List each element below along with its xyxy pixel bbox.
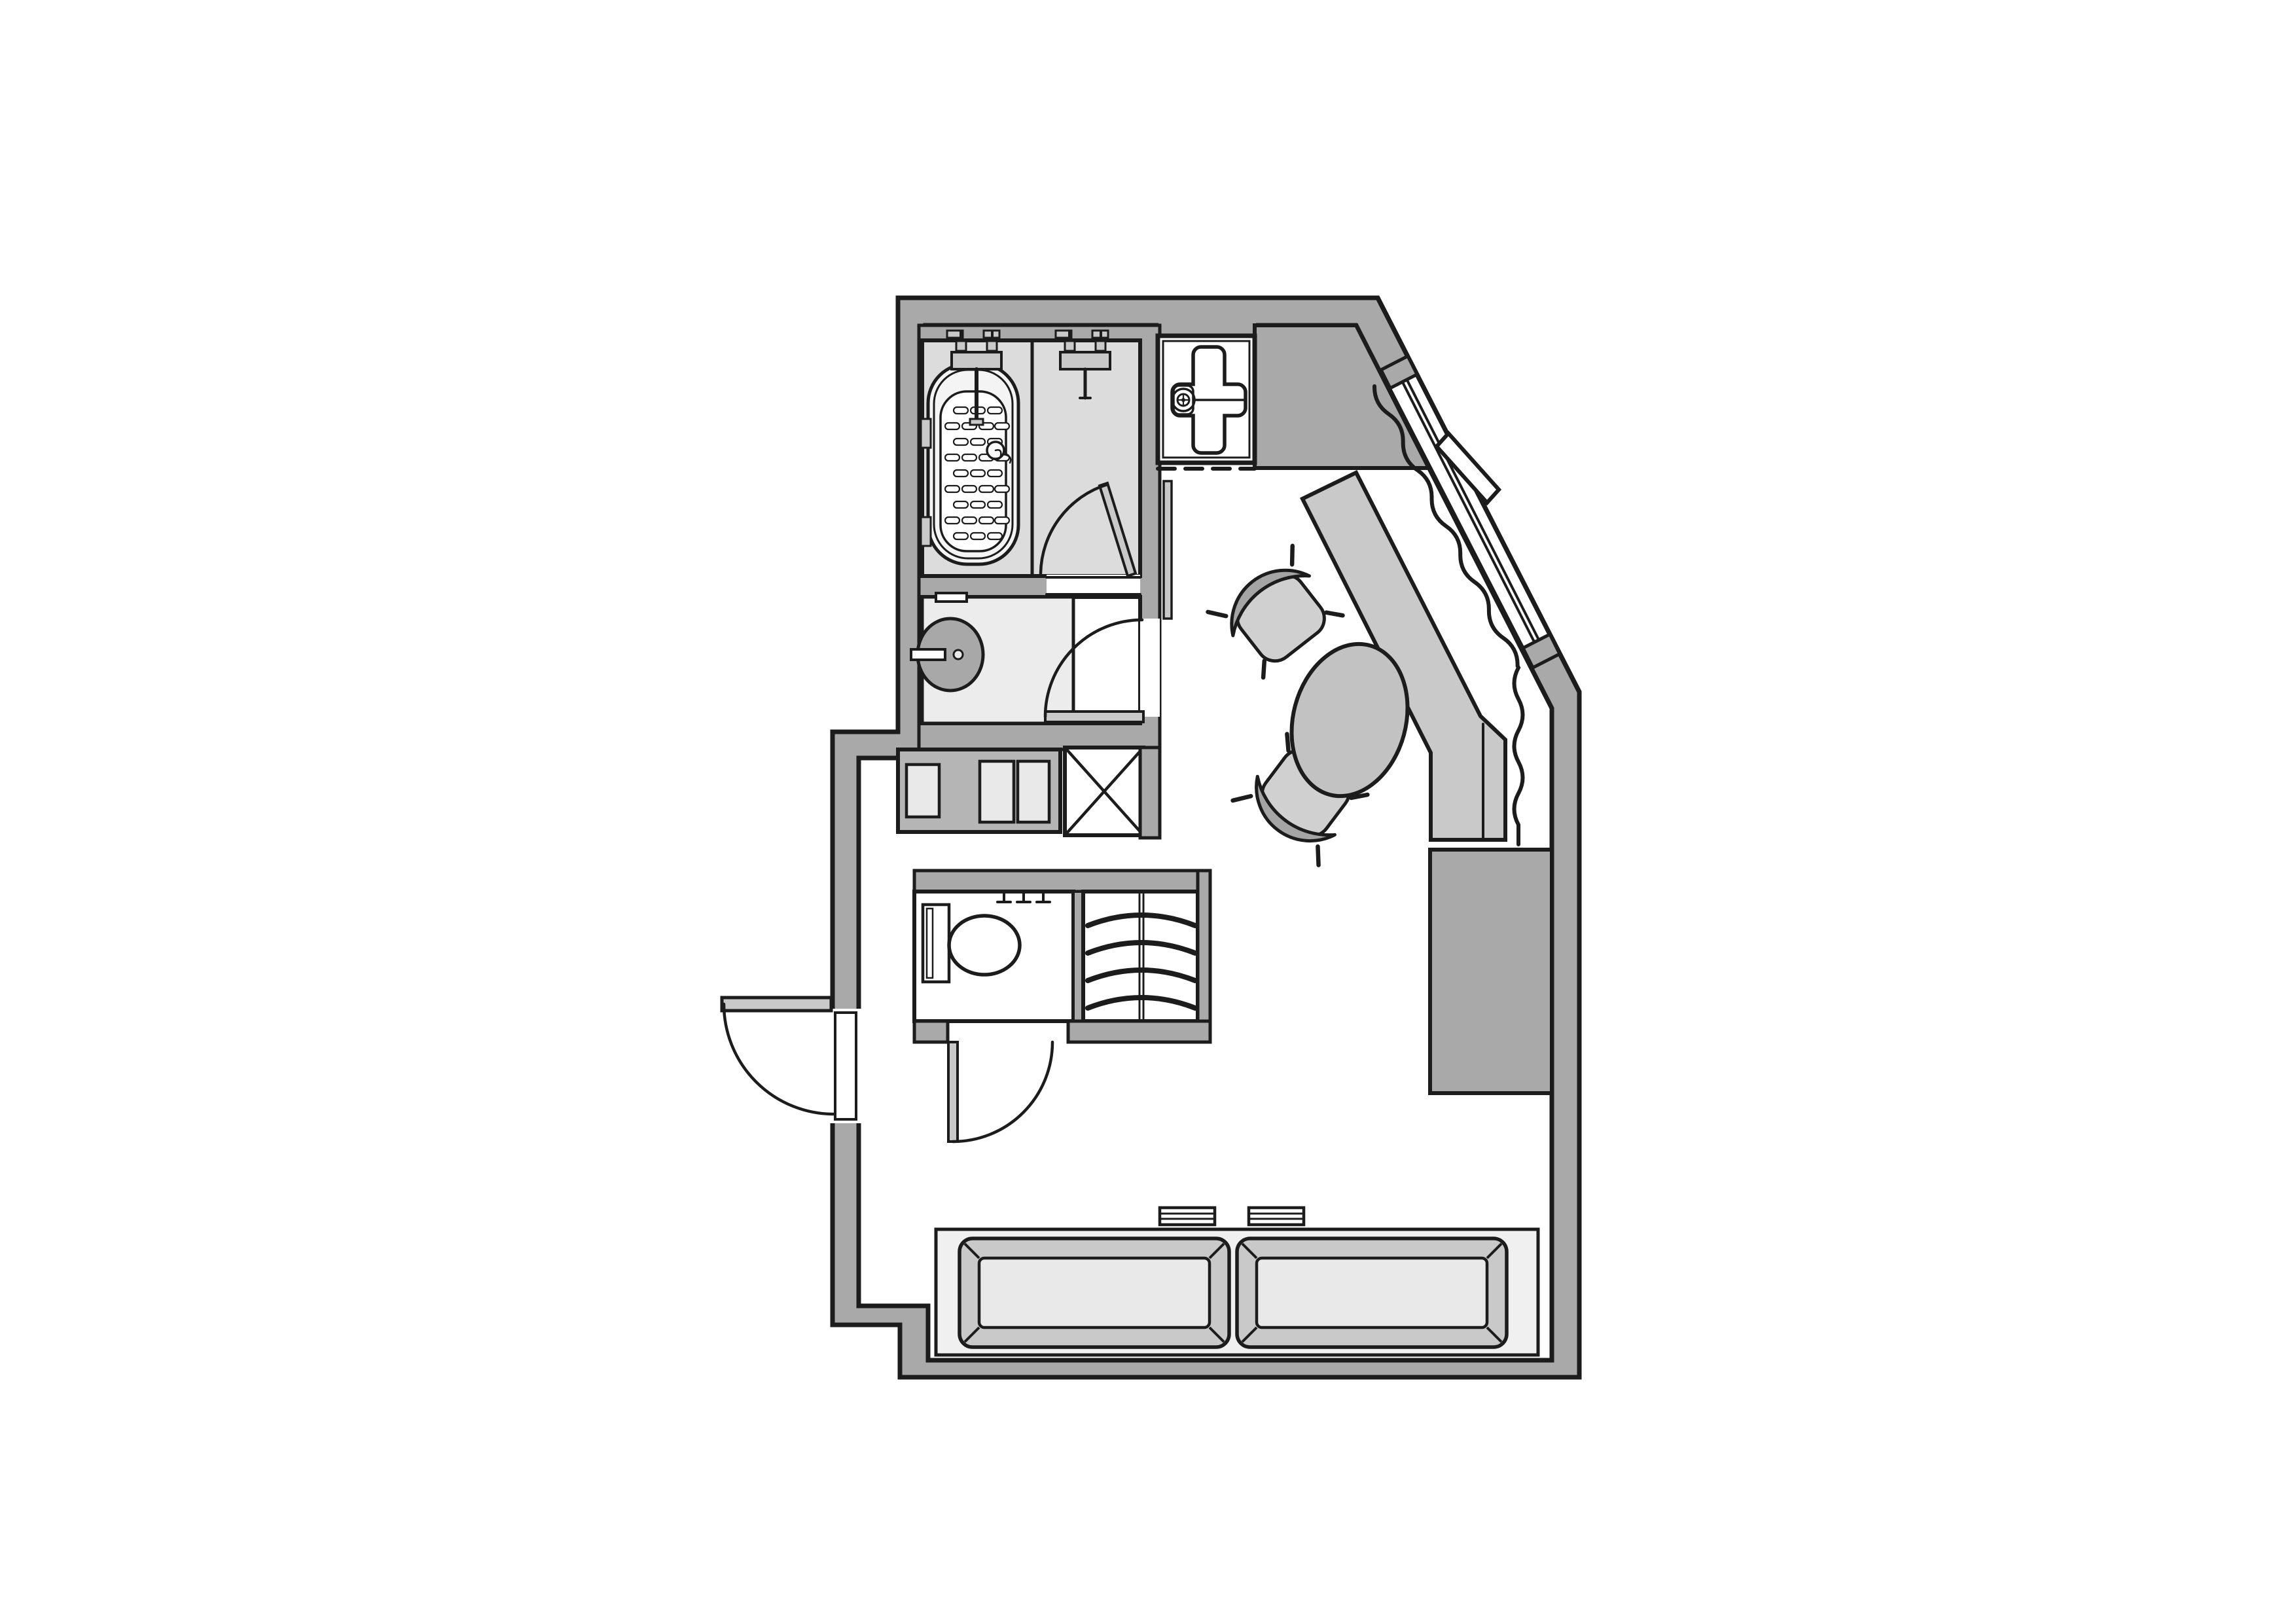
washroom-door-leaf [1045,712,1143,722]
entrance-door-frame [835,1013,856,1119]
sliding-panel [1164,481,1172,619]
floor-plan-svg [0,0,2296,1624]
toilet-wall-top [914,871,1210,892]
column [1430,850,1552,1093]
bed-mattress [960,1238,1229,1347]
wall-stub [1140,748,1160,838]
tub-faucet-plate [952,352,1001,369]
toilet-bowl [949,916,1020,975]
tub-faucet-handle [956,341,966,351]
washroom-doorway [1140,619,1160,717]
headboard-lamp [1160,1208,1215,1225]
bed-mattress [1237,1238,1507,1347]
entrance-door-leaf [722,998,831,1011]
toilet-wall-bottom [1068,1021,1210,1042]
soap-niche [936,593,967,602]
shower-faucet-plate [1060,352,1110,369]
tub-faucet-spout-tip [970,419,983,425]
minibar-item [906,765,939,817]
toilet-wall-bottom [914,1021,948,1042]
minibar-item [1018,761,1049,822]
toilet-door-swing-arc [953,1042,1052,1142]
basin-drain [954,650,963,659]
entrance-door-swing-arc [724,1004,834,1114]
bathtub-grab-bar [921,517,931,546]
shower-faucet-handle [1096,341,1105,351]
closet-wall-right [1198,871,1210,1042]
shower-faucet-handle [1065,341,1075,351]
floor-plan-page [0,0,2296,1624]
tub-faucet-handle [987,341,997,351]
toilet-door-leaf [948,1042,958,1142]
bathtub-grab-bar [921,419,931,448]
headboard-lamp [1249,1208,1304,1225]
basin-faucet [911,649,945,660]
minibar-item [980,761,1014,822]
